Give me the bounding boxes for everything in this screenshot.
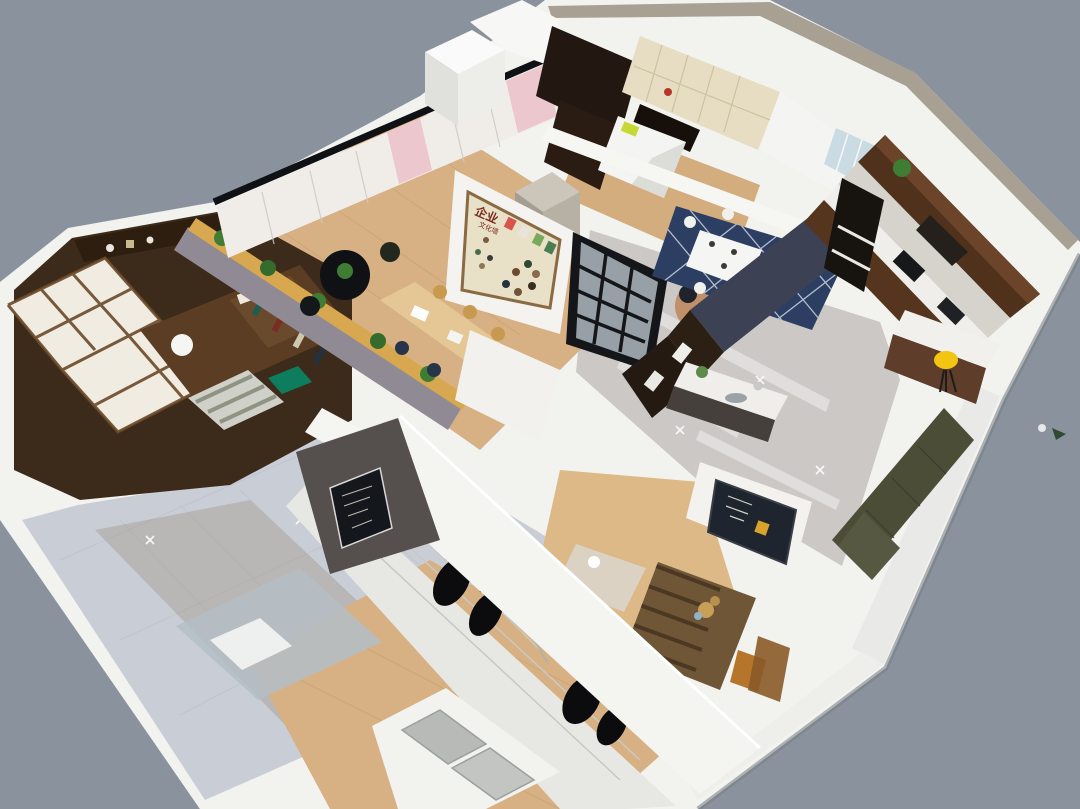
desk-decor-red (664, 88, 672, 96)
round-chair-2 (300, 296, 320, 316)
table-plant (337, 263, 353, 279)
bar-flowers (696, 366, 708, 378)
pebble (1038, 424, 1046, 432)
daybed-pillow (588, 556, 600, 568)
bar-sink (725, 393, 747, 403)
render-canvas: 企业 文化墙 (0, 0, 1080, 809)
round-chair-1 (380, 242, 400, 262)
kettle (754, 382, 763, 391)
kitchen-plant (893, 159, 911, 177)
white-chair (171, 334, 193, 356)
floorplan-render: 企业 文化墙 (0, 0, 1080, 809)
